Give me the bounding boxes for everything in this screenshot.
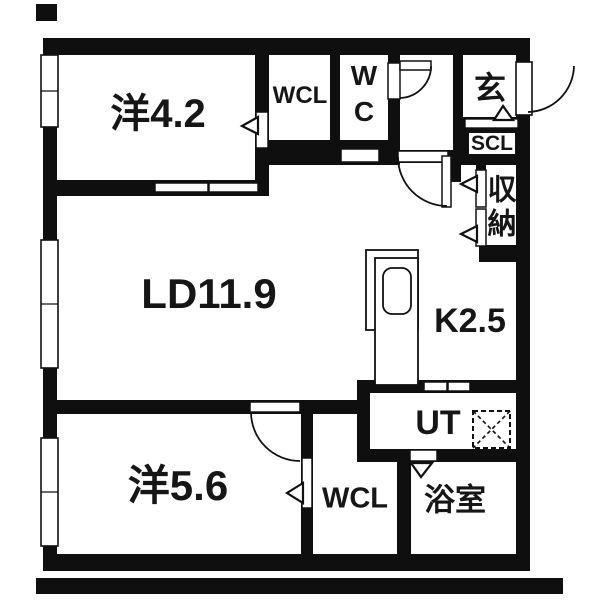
wall-wc-left: [330, 55, 340, 145]
wall-wcl-bottom-left: [301, 414, 313, 554]
label-storage-char1: 収: [487, 177, 516, 206]
wall-wc-right: [388, 55, 400, 145]
label-western-top: 洋4.2: [110, 94, 206, 134]
wall-entrance-left: [453, 53, 463, 165]
scl-closet: SCL: [467, 131, 517, 156]
label-living-dining: LD11.9: [141, 273, 276, 315]
deco-bottom-bar: [36, 578, 563, 594]
deco-corner-block: [36, 4, 57, 21]
floor-plan: 洋4.2 WCL W C 玄 SCL 収 納 LD11.9 K2.5 UT 浴室…: [0, 0, 600, 600]
door-arrow-bathroom-down: [411, 463, 432, 477]
label-storage-char2: 納: [487, 211, 516, 240]
door-arc-hall-ld: [398, 157, 447, 206]
door-arc-western-bottom: [251, 412, 300, 461]
wall-western-top-bottom: [57, 180, 269, 196]
label-entrance: 玄: [474, 72, 506, 104]
label-wc-line1: W: [351, 62, 377, 90]
washing-machine-space: [473, 411, 510, 448]
kitchen-sink: [383, 268, 411, 314]
wall-ut-bottom: [357, 449, 530, 462]
label-wc: W C: [351, 62, 377, 126]
label-storage: 収 納: [487, 177, 516, 240]
door-arc-entrance: [528, 66, 574, 112]
wall-exterior-bottom: [43, 554, 530, 571]
wall-exterior-left: [43, 38, 57, 571]
label-bathroom: 浴室: [424, 485, 486, 516]
label-kitchen: K2.5: [434, 304, 506, 338]
label-utility: UT: [415, 406, 460, 440]
label-wcl-top: WCL: [273, 84, 328, 108]
wall-western-top-right: [255, 55, 269, 196]
label-wc-line2: C: [354, 98, 374, 126]
door-arrow-storage-upper: [461, 176, 477, 192]
door-arc-wc: [400, 66, 431, 98]
wall-kitchen-bottom: [357, 380, 530, 393]
door-arrow-storage-lower: [461, 226, 477, 242]
label-scl: SCL: [471, 132, 513, 156]
wall-storage-connector: [476, 163, 486, 171]
wall-ld-bottom: [43, 400, 370, 414]
label-wcl-bottom: WCL: [322, 485, 388, 514]
wall-bathroom-left: [397, 449, 411, 554]
label-western-bottom: 洋5.6: [128, 465, 228, 507]
wall-storage-bottom: [479, 245, 530, 262]
kitchen-counter: [366, 250, 418, 385]
door-storage: [461, 170, 486, 246]
